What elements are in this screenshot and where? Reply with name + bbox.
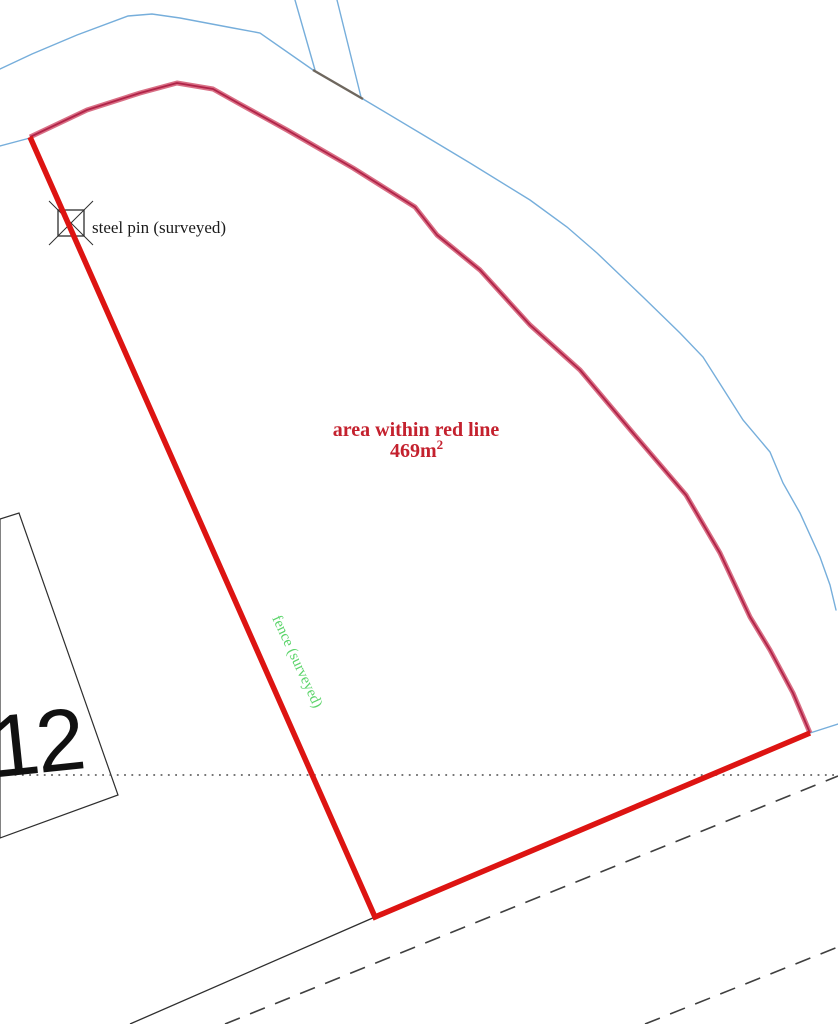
dashed-track-lower — [645, 947, 838, 1024]
area-label-value: 469m2 — [390, 437, 443, 462]
house-number-label: 12 — [0, 688, 87, 796]
plan-canvas: steel pin (surveyed) area within red lin… — [0, 0, 838, 1024]
road-edge-blue-main — [0, 14, 836, 610]
dashed-track-upper — [225, 776, 838, 1024]
area-value-exponent: 2 — [437, 437, 444, 452]
area-value-number: 469m — [390, 440, 437, 462]
site-plan: steel pin (surveyed) area within red lin… — [0, 0, 838, 1024]
area-label-line1: area within red line — [333, 419, 500, 441]
driveway-edge-east — [337, 0, 361, 97]
road-edge-blue-corner-stub — [810, 724, 838, 733]
road-edge-line — [130, 917, 375, 1024]
red-line-boundary — [30, 137, 810, 917]
steel-pin-label: steel pin (surveyed) — [92, 218, 226, 237]
road-edge-blue-left-stub — [0, 138, 30, 146]
